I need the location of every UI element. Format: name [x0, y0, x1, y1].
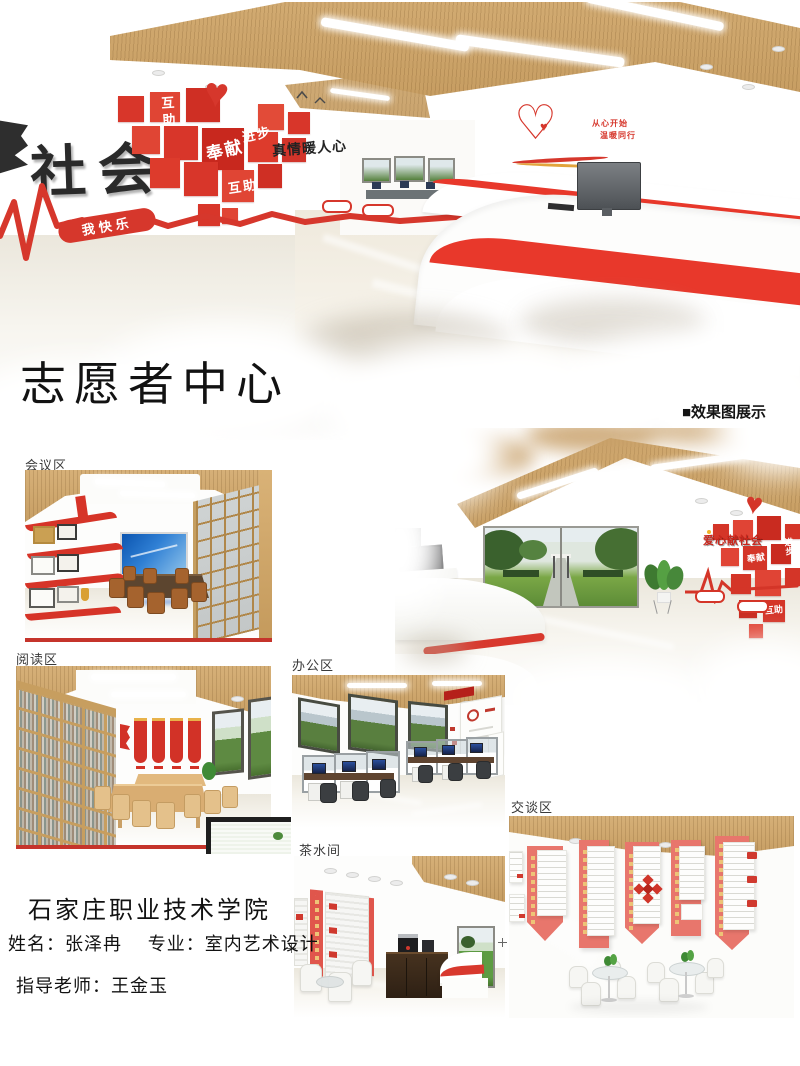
reception-slogan-line1: 从心开始 — [592, 118, 628, 129]
ceiling-light-strip — [111, 692, 186, 697]
chair — [132, 800, 151, 827]
downlight — [231, 696, 244, 702]
entrance-render: ♥ 爱心献社会 奉献 互助 进步 — [395, 428, 800, 705]
table-plant — [687, 950, 694, 961]
page-title: 志愿者中心 — [20, 348, 290, 414]
round-table — [592, 966, 628, 980]
tree — [519, 540, 547, 560]
window — [248, 696, 271, 780]
meeting-area-photo — [25, 470, 272, 642]
chair — [147, 592, 165, 614]
downlight — [368, 876, 381, 882]
monitor — [342, 761, 356, 772]
tree — [595, 528, 639, 570]
office-chair — [418, 765, 433, 783]
sideboard-cabinet — [386, 952, 448, 998]
monitor — [470, 743, 483, 753]
red-emblem — [120, 724, 130, 750]
tea-room-photo — [294, 856, 505, 1018]
office-chair — [448, 763, 463, 781]
award-frame — [29, 588, 55, 608]
red-tag — [329, 927, 337, 934]
award-frame — [57, 554, 79, 572]
mosaic-tile — [118, 96, 144, 122]
mosaic-tile — [132, 126, 160, 154]
shadow — [569, 1000, 709, 1014]
splash-texture — [403, 636, 467, 662]
bookshelf-wall — [16, 688, 116, 849]
red-tag — [517, 874, 523, 878]
red-tag — [296, 914, 303, 920]
downlight — [324, 868, 337, 874]
tree — [461, 936, 475, 948]
ekg-pill — [362, 204, 394, 217]
ceiling-light-strip — [432, 681, 482, 686]
mosaic-tile — [164, 126, 198, 160]
red-floor-trim — [25, 638, 272, 642]
monitor — [442, 745, 455, 755]
cabinet-seam — [406, 958, 407, 996]
monitor — [372, 759, 386, 770]
chair — [204, 790, 221, 814]
banner-dash — [172, 766, 181, 769]
culture-wall-partial-character — [0, 118, 28, 178]
award-frame — [31, 556, 55, 575]
door-mullion — [560, 528, 562, 606]
chair — [617, 976, 636, 999]
red-tag — [329, 903, 337, 910]
door-handle — [553, 556, 555, 578]
red-tag — [329, 951, 337, 958]
office-chair — [352, 781, 369, 801]
plant — [202, 762, 216, 780]
student-name-major: 姓名：张泽冉 专业：室内艺术设计 — [8, 930, 319, 956]
office-chair — [380, 779, 396, 798]
gold-dot — [707, 530, 711, 534]
screen-streak — [130, 544, 177, 558]
downlight — [695, 498, 708, 504]
wall-board-partial — [509, 851, 523, 883]
downlight — [346, 872, 359, 878]
banner-dash — [190, 766, 199, 769]
chair — [127, 586, 144, 608]
chair — [109, 578, 125, 598]
hedge — [583, 570, 623, 577]
hedge — [503, 570, 539, 577]
table-base — [678, 994, 694, 998]
downlight — [772, 46, 785, 52]
hero-lobby-render: 社会 ♥ 互助 进步 奉献 互助 真情暖人心 我快乐 — [0, 0, 800, 440]
gold-ticks — [531, 854, 535, 924]
render-badge: ■效果图展示 — [682, 401, 766, 422]
window — [298, 697, 340, 754]
red-tag — [747, 876, 757, 883]
entrance-wall-title: 爱心献社会 — [703, 532, 763, 548]
round-table — [669, 962, 705, 976]
poster-page: 社会 ♥ 互助 进步 奉献 互助 真情暖人心 我快乐 — [0, 0, 800, 1066]
wall-board — [537, 850, 567, 916]
ekg-pill — [695, 590, 725, 603]
reception-heart-small: ♥ — [540, 120, 548, 133]
chat-area-photo — [509, 816, 794, 1018]
chair — [191, 582, 207, 602]
red-mark — [485, 708, 495, 713]
table-plant — [610, 954, 617, 965]
monitor — [312, 763, 326, 774]
chair — [352, 960, 372, 986]
wall-banner — [134, 718, 147, 763]
trophy — [81, 588, 89, 601]
downlight — [444, 874, 457, 880]
mosaic-tile — [749, 624, 763, 638]
monitor — [414, 747, 427, 757]
glass-table — [316, 976, 344, 988]
downlight — [152, 70, 165, 76]
office-chair — [320, 783, 337, 803]
office-chair — [476, 761, 491, 779]
red-tag — [747, 900, 757, 907]
chat-area-label: 交谈区 — [511, 797, 553, 816]
reception-slogan-line2: 温暖同行 — [600, 130, 636, 141]
heart-icon: ♥ — [202, 71, 231, 115]
chair — [123, 566, 136, 581]
red-tag — [519, 914, 525, 918]
red-tag — [747, 852, 757, 859]
overlapping-frame-fragment — [206, 817, 291, 854]
flower-emblem-icon — [635, 876, 661, 902]
coffee-machine-button — [406, 946, 410, 950]
poster-line — [469, 726, 493, 732]
tile-word-progress: 进步 — [784, 537, 800, 557]
bookshelf-wall — [193, 484, 264, 642]
plant-pot — [657, 592, 671, 603]
window — [212, 708, 244, 775]
birds-icon — [296, 90, 330, 106]
banner-dash — [154, 766, 163, 769]
plant — [273, 832, 283, 840]
wall-banner — [170, 718, 183, 763]
award-frame — [57, 524, 77, 540]
ekg-pill — [737, 600, 769, 613]
reception-heart-logo: ♡ — [514, 100, 557, 148]
chair — [94, 786, 111, 810]
red-tag — [450, 727, 455, 731]
wall-banner — [188, 718, 201, 763]
chair — [143, 568, 157, 584]
downlight — [742, 84, 755, 90]
school-name: 石家庄职业技术学院 — [28, 890, 271, 925]
office-area-photo — [292, 675, 505, 828]
downlight — [466, 880, 479, 886]
table-stem — [685, 972, 687, 994]
tile-word-mutual-aid-top: 互助 — [157, 95, 175, 130]
wall-board-small — [681, 904, 703, 920]
window — [348, 693, 398, 756]
office-area-label: 办公区 — [292, 655, 334, 674]
desk-monitor — [577, 162, 641, 210]
wall-banner — [152, 718, 165, 763]
cabinet-seam — [426, 958, 427, 996]
chair — [112, 794, 130, 820]
award-frame — [57, 586, 79, 603]
mosaic-tile — [288, 112, 310, 134]
crop-mark — [498, 938, 507, 947]
chair — [156, 802, 175, 829]
wall-board — [679, 846, 705, 900]
advisor-name: 指导老师：王金玉 — [16, 972, 168, 998]
table-stem — [608, 976, 610, 998]
wall-board — [587, 846, 615, 936]
chair — [171, 588, 188, 609]
chair — [222, 786, 238, 808]
chair — [659, 978, 679, 1002]
banner-dash — [136, 766, 145, 769]
ceiling-light-strip — [347, 683, 407, 688]
door-handle — [567, 556, 569, 578]
bookshelf-end-column — [259, 470, 272, 642]
red-seal — [467, 708, 479, 722]
downlight — [700, 64, 713, 70]
desk-monitor-stand — [602, 208, 612, 216]
downlight — [390, 880, 403, 886]
chair — [175, 568, 189, 584]
chair — [184, 794, 201, 818]
award-frame — [33, 526, 55, 544]
chair — [707, 958, 724, 978]
tea-counter-base — [442, 978, 488, 998]
downlight — [730, 510, 743, 516]
wall-warm-hearts-text: 真情暖人心 — [271, 135, 347, 160]
ekg-pill — [322, 200, 352, 213]
ceiling-light-strip — [91, 674, 176, 680]
